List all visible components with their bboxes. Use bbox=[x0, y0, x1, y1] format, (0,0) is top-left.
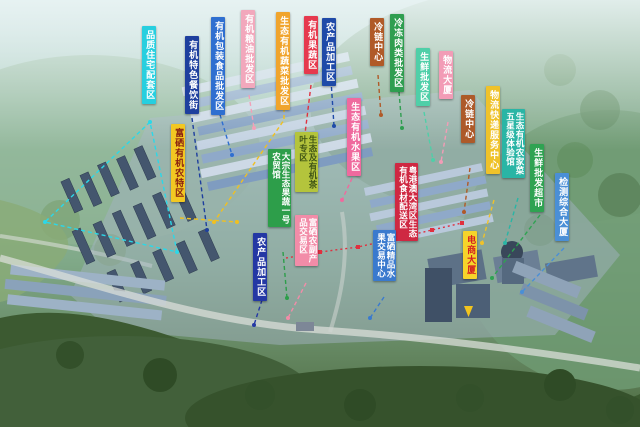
zone-label-youji-baozhuang: 有机包装食品批发区 bbox=[211, 17, 225, 115]
zone-label-text: 有机粮油批发区 bbox=[243, 14, 253, 84]
zone-label-text: 冷冻肉类批发区 bbox=[392, 18, 402, 88]
zone-label-text: 生态有机水果区 bbox=[349, 102, 359, 172]
zone-label-lenglian-zhongxin-1: 冷链中心 bbox=[370, 18, 384, 66]
zone-label-fuxi-nongte: 富硒有机农特区 bbox=[171, 124, 185, 202]
zone-label-pinzhi-zhuzhai: 品质住宅配套区 bbox=[142, 26, 156, 104]
zone-label-text-col2: 五星级体验馆 bbox=[504, 112, 514, 175]
zone-label-nongjiacai-tiyanguan: 生态有机农家菜五星级体验馆 bbox=[502, 109, 525, 178]
zone-label-wuliu-dasha: 物流大厦 bbox=[439, 51, 453, 99]
zone-label-text: 物流大厦 bbox=[441, 55, 451, 95]
zone-label-shengtai-shucai: 生态有机蔬菜批发区 bbox=[276, 12, 290, 110]
zone-label-youji-liangyou: 有机粮油批发区 bbox=[241, 10, 255, 88]
zone-label-lenglian-zhongxin-2: 冷链中心 bbox=[461, 95, 475, 143]
zone-label-text: 农产品加工区 bbox=[324, 22, 334, 82]
zone-label-text: 有机特色餐饮街 bbox=[187, 40, 197, 110]
zone-label-shengxian-pifa: 生鲜批发区 bbox=[416, 48, 430, 106]
zone-label-text: 冷链中心 bbox=[372, 22, 382, 62]
zone-label-wuliu-kuaidi: 物流快递服务中心 bbox=[486, 86, 500, 174]
zone-label-text: 检测综合大厦 bbox=[557, 177, 567, 237]
zone-label-shengtai-shuiguo: 生态有机水果区 bbox=[347, 98, 361, 176]
zone-label-dazong-nongmaoguan: 大宗生态果蔬一号农贸馆 bbox=[268, 149, 291, 227]
zone-label-youji-guoshu: 有机果蔬区 bbox=[304, 16, 318, 74]
zone-label-text-col2: 农贸馆 bbox=[270, 152, 280, 224]
zone-label-text-col2: 品交易区 bbox=[297, 218, 307, 263]
zone-label-yuegangao-peisong: 粤港澳大湾区生态有机食材配送区 bbox=[395, 163, 418, 241]
zone-label-nongchanpin-jiagong-1: 农产品加工区 bbox=[322, 18, 336, 86]
masterplan-rendering: 品质住宅配套区有机特色餐饮街有机包装食品批发区有机粮油批发区生态有机蔬菜批发区有… bbox=[0, 0, 640, 427]
zone-label-text: 电商大厦 bbox=[465, 235, 475, 275]
zone-label-shengxian-chaoshi: 生鲜批发超市 bbox=[530, 144, 544, 212]
zone-label-text: 生态有机蔬菜批发区 bbox=[278, 16, 288, 106]
zone-label-text: 富硒有机农特区 bbox=[173, 128, 183, 198]
zone-label-chaye-zhuanqu: 生态及有机茶叶专区 bbox=[295, 132, 318, 192]
zone-label-text: 农产品加工区 bbox=[255, 237, 265, 297]
zone-label-fuxi-jiaoyi: 富硒农副产品交易区 bbox=[295, 215, 318, 266]
zone-label-text: 物流快递服务中心 bbox=[488, 90, 498, 170]
zone-label-text: 有机果蔬区 bbox=[306, 20, 316, 70]
zone-label-lengdong-roulei: 冷冻肉类批发区 bbox=[390, 14, 404, 92]
zone-label-text-col2: 叶专区 bbox=[297, 135, 307, 189]
zone-label-text: 有机包装食品批发区 bbox=[213, 21, 223, 111]
zone-label-text: 生鲜批发超市 bbox=[532, 148, 542, 208]
zone-label-youji-tese-canyin: 有机特色餐饮街 bbox=[185, 36, 199, 114]
zone-label-dianshang-dasha: 电商大厦 bbox=[463, 231, 477, 279]
zone-label-text: 品质住宅配套区 bbox=[144, 30, 154, 100]
zone-label-text: 生鲜批发区 bbox=[418, 52, 428, 102]
zone-label-text-col2: 果交易中心 bbox=[375, 233, 385, 278]
zone-label-text-col2: 有机食材配送区 bbox=[397, 166, 407, 238]
zone-labels-layer: 品质住宅配套区有机特色餐饮街有机包装食品批发区有机粮油批发区生态有机蔬菜批发区有… bbox=[0, 0, 640, 427]
zone-label-text: 冷链中心 bbox=[463, 99, 473, 139]
zone-label-jingpin-shuiguo: 富硒精品水果交易中心 bbox=[373, 230, 396, 281]
zone-label-jiance-dasha: 检测综合大厦 bbox=[555, 173, 569, 241]
zone-label-nongchanpin-jiagong-2: 农产品加工区 bbox=[253, 233, 267, 301]
